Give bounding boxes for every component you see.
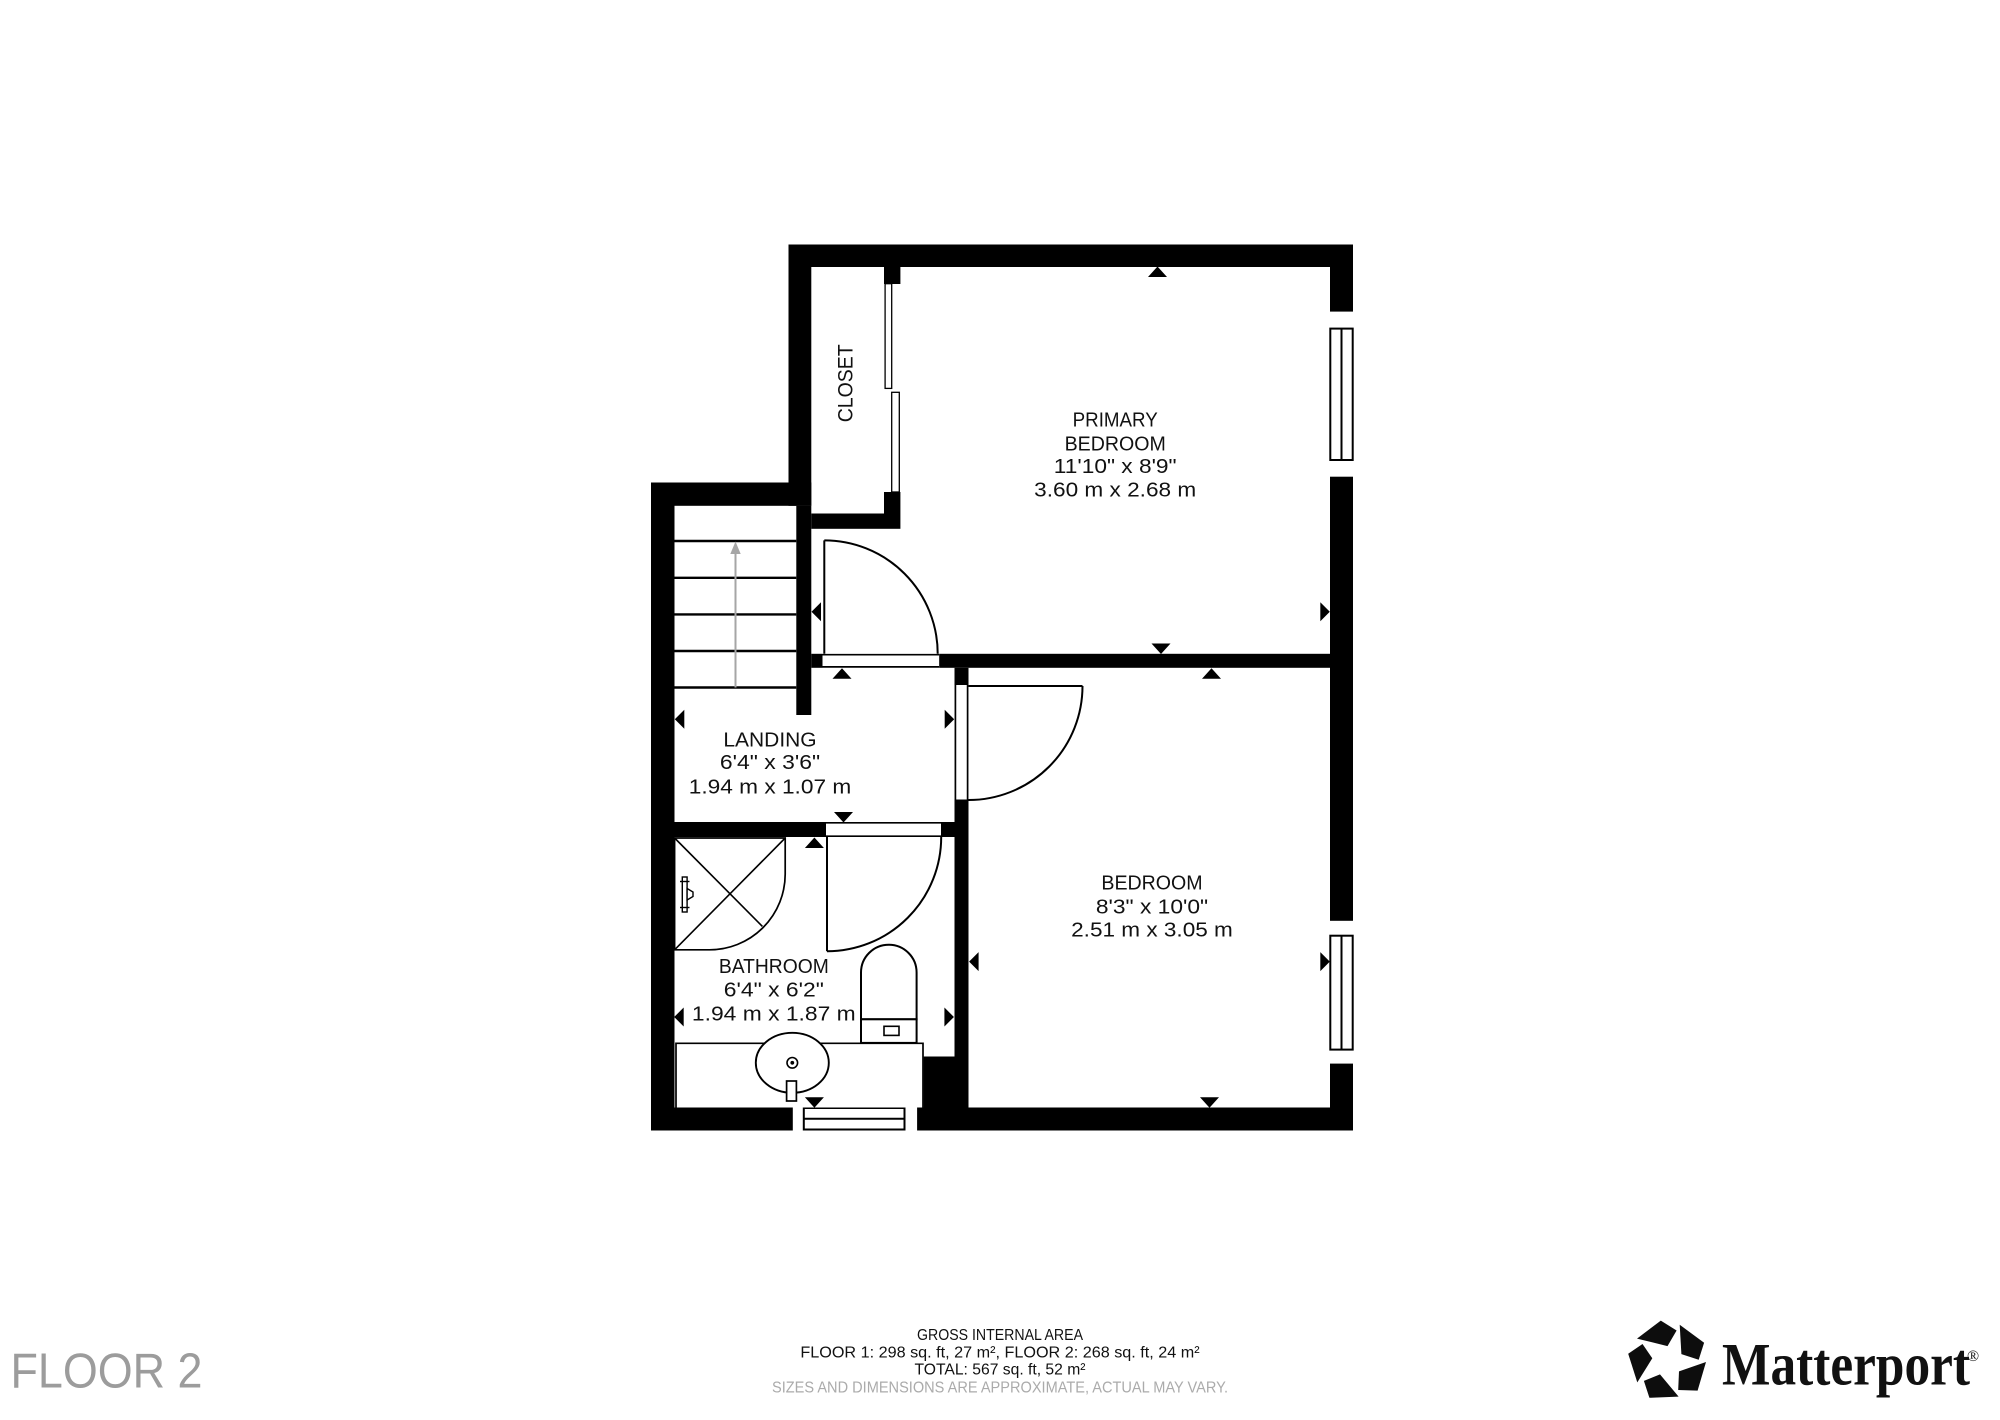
svg-text:FLOOR 1: 298 sq. ft, 27 m², FL: FLOOR 1: 298 sq. ft, 27 m², FLOOR 2: 268… bbox=[800, 1345, 1199, 1362]
svg-text:2.51 m x 3.05 m: 2.51 m x 3.05 m bbox=[1071, 920, 1233, 942]
svg-text:FLOOR 2: FLOOR 2 bbox=[11, 1345, 203, 1399]
svg-text:SIZES AND DIMENSIONS ARE APPRO: SIZES AND DIMENSIONS ARE APPROXIMATE, AC… bbox=[772, 1379, 1228, 1396]
svg-text:TOTAL: 567 sq. ft, 52 m²: TOTAL: 567 sq. ft, 52 m² bbox=[915, 1361, 1086, 1378]
svg-text:1.94 m x 1.87 m: 1.94 m x 1.87 m bbox=[692, 1004, 856, 1026]
svg-text:Matterport: Matterport bbox=[1722, 1332, 1970, 1398]
svg-text:PRIMARY: PRIMARY bbox=[1073, 410, 1158, 432]
svg-text:3.60 m x 2.68 m: 3.60 m x 2.68 m bbox=[1034, 480, 1196, 502]
svg-text:6'4" x 3'6": 6'4" x 3'6" bbox=[720, 752, 820, 774]
svg-text:BEDROOM: BEDROOM bbox=[1101, 872, 1202, 894]
svg-text:®: ® bbox=[1967, 1348, 1979, 1365]
svg-text:1.94 m x 1.07 m: 1.94 m x 1.07 m bbox=[689, 776, 852, 798]
svg-text:11'10" x 8'9": 11'10" x 8'9" bbox=[1054, 456, 1177, 478]
svg-text:6'4" x 6'2": 6'4" x 6'2" bbox=[724, 980, 824, 1002]
svg-text:LANDING: LANDING bbox=[723, 729, 816, 751]
svg-text:GROSS INTERNAL AREA: GROSS INTERNAL AREA bbox=[917, 1327, 1083, 1344]
svg-text:BEDROOM: BEDROOM bbox=[1065, 433, 1166, 455]
svg-text:CLOSET: CLOSET bbox=[834, 344, 858, 422]
svg-text:BATHROOM: BATHROOM bbox=[719, 956, 829, 978]
svg-text:8'3" x 10'0": 8'3" x 10'0" bbox=[1096, 897, 1208, 919]
